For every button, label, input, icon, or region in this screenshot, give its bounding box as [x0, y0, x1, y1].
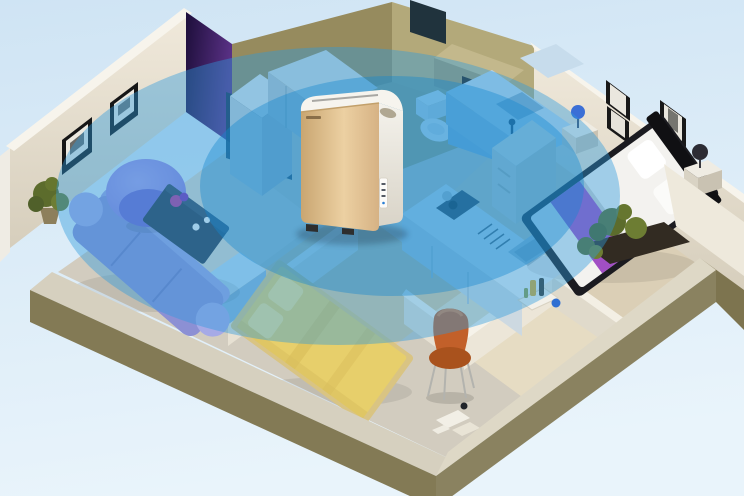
purifier-front-panel — [301, 103, 379, 231]
blue-cup — [552, 299, 561, 308]
west-wall-outer-edge — [0, 148, 10, 262]
isometric-apartment-scene — [0, 0, 744, 496]
air-purifier-coverage-render — [0, 0, 744, 496]
purifier-control-strip — [380, 178, 388, 208]
purifier-brand-label — [306, 116, 321, 119]
purifier-foot — [342, 228, 354, 235]
air-purifier — [296, 90, 408, 245]
purifier-foot — [306, 224, 318, 232]
purifier-power-led — [382, 202, 385, 205]
camera-object — [461, 403, 468, 410]
dark-lamp — [692, 144, 708, 160]
